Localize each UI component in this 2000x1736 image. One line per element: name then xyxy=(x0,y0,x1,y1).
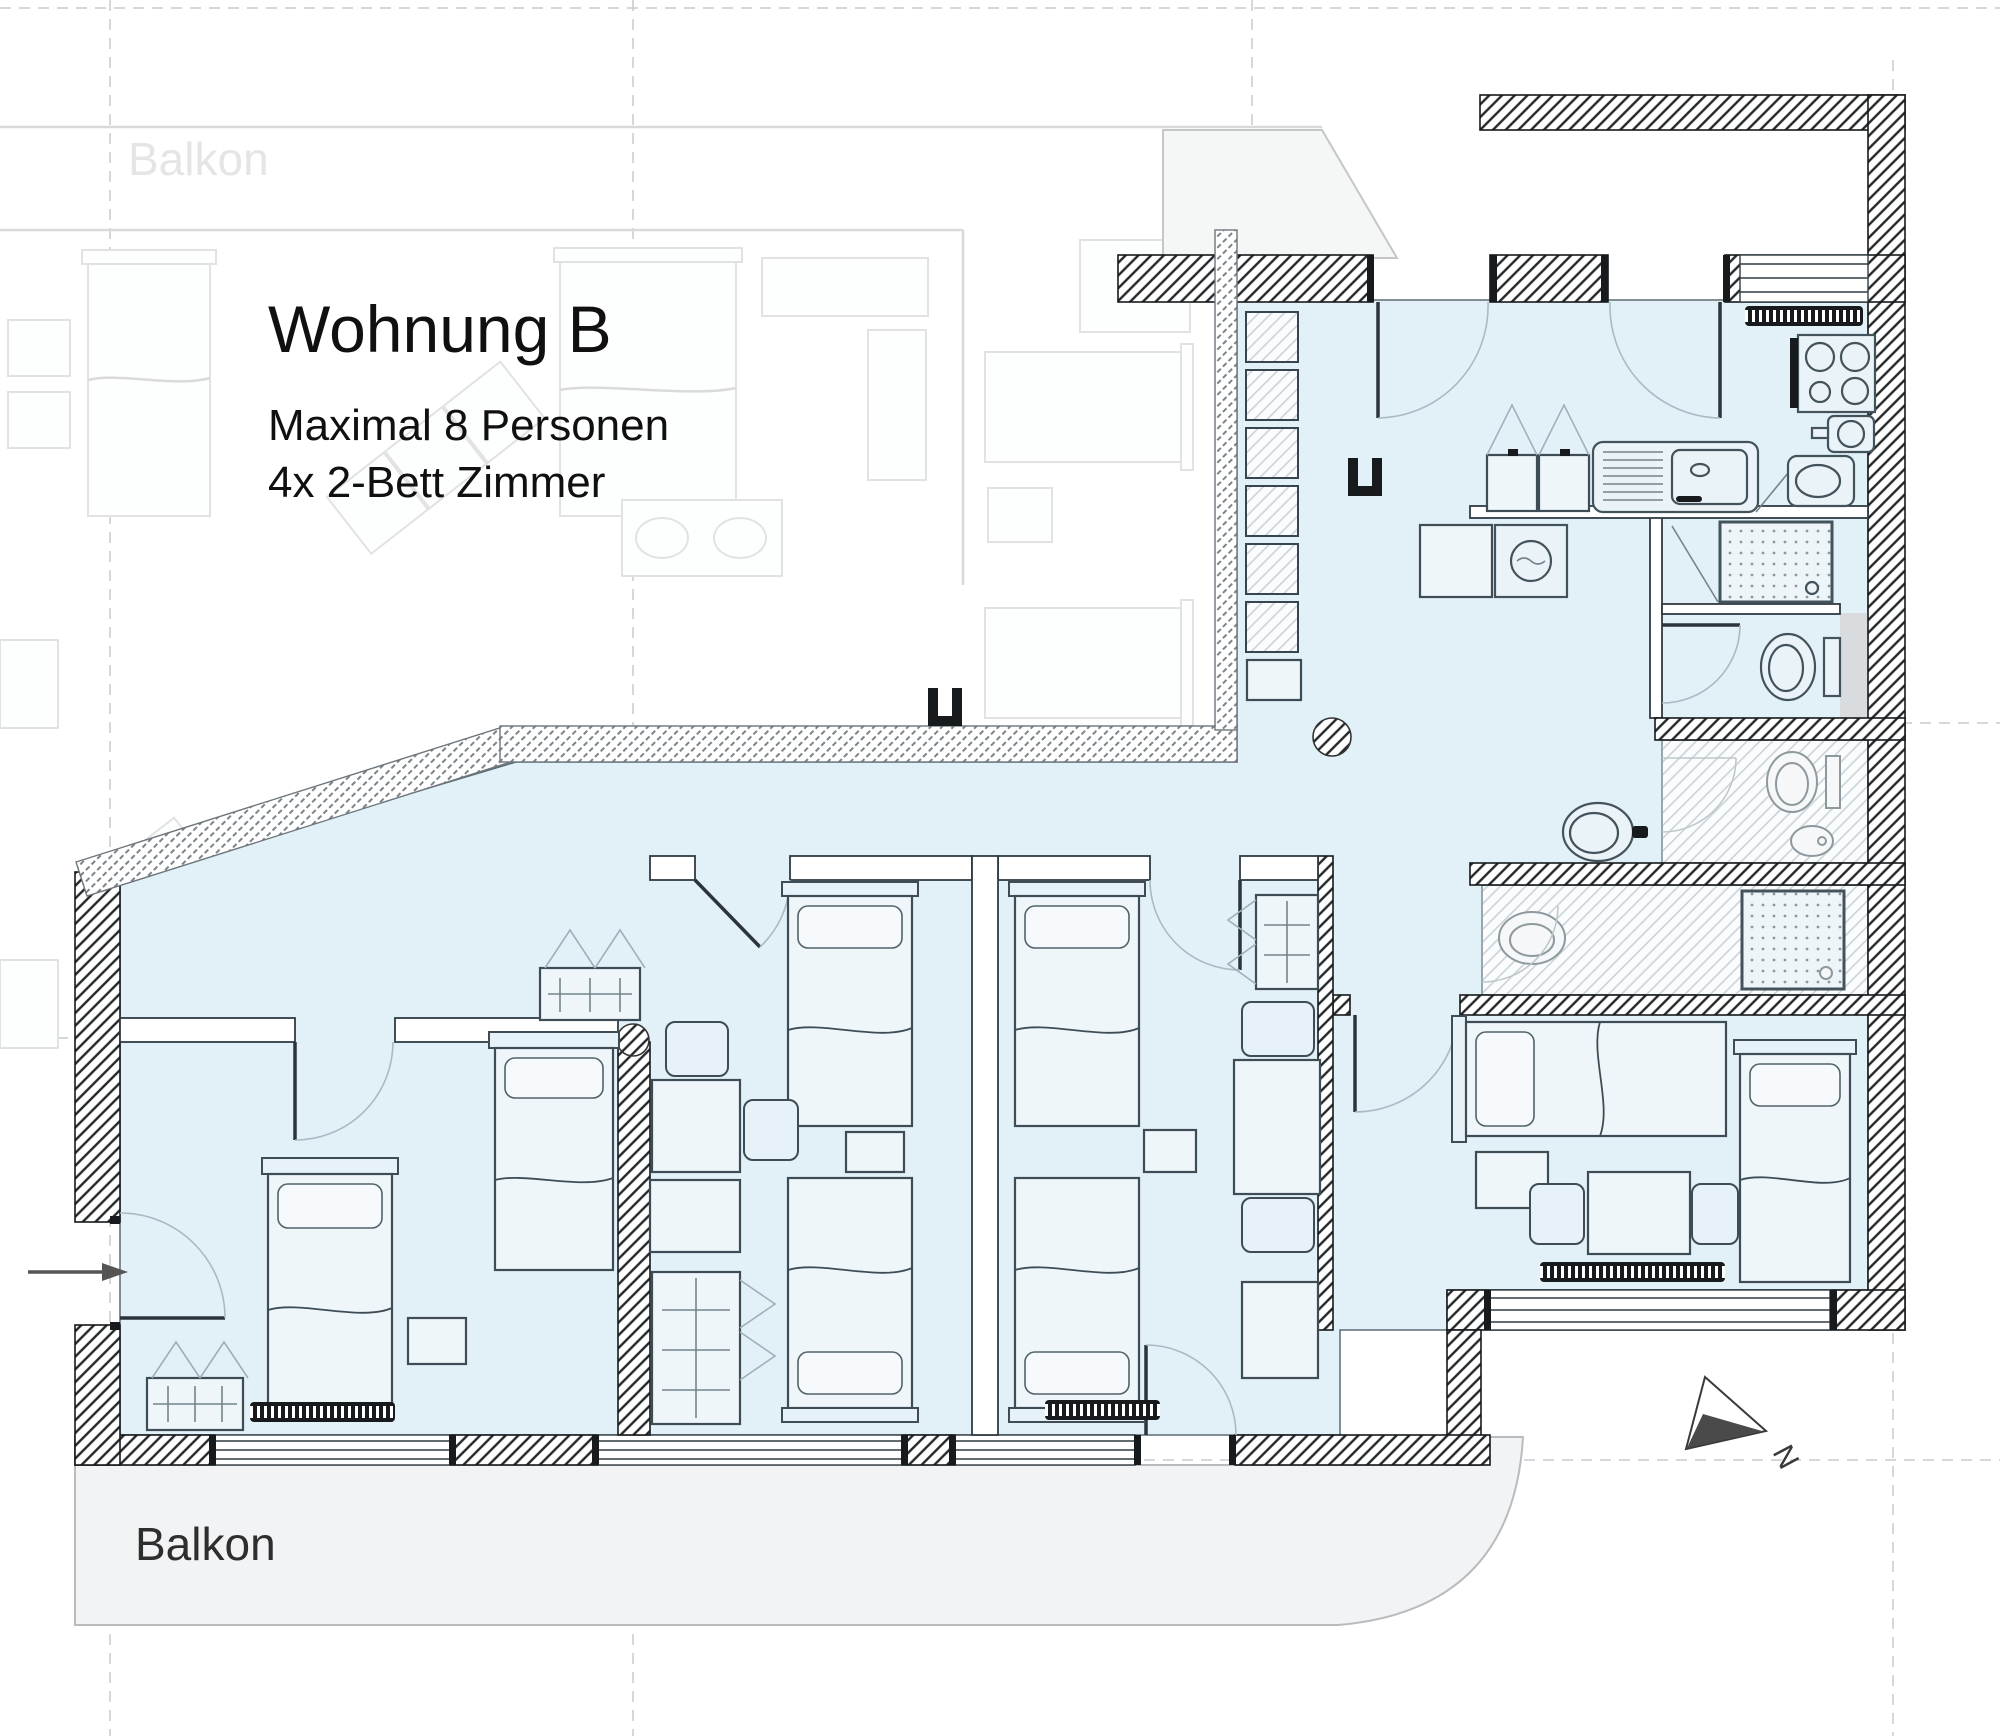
apartment-room-count: 4x 2-Bett Zimmer xyxy=(268,458,605,507)
cabinet xyxy=(650,1180,740,1252)
kitchen-basin xyxy=(1788,456,1854,506)
column xyxy=(617,1024,649,1056)
chair xyxy=(1530,1184,1584,1244)
neighbor-balcony-area xyxy=(1163,130,1397,258)
column xyxy=(1313,718,1351,756)
bed xyxy=(1009,1178,1145,1422)
entry-arrow-icon xyxy=(28,1263,128,1281)
stove xyxy=(1790,335,1875,412)
bed xyxy=(489,1032,619,1270)
bed xyxy=(1452,1016,1726,1142)
window-room1 xyxy=(209,1435,456,1465)
window-room3 xyxy=(949,1435,1141,1465)
kitchen-sink xyxy=(1593,442,1758,512)
apartment-title: Wohnung B xyxy=(268,292,612,366)
bed xyxy=(782,882,918,1126)
nightstand xyxy=(408,1318,466,1364)
bed xyxy=(782,1178,918,1422)
cabinet xyxy=(1242,1282,1318,1378)
neighbor-wc-room xyxy=(1662,740,1868,863)
window-room2 xyxy=(592,1435,908,1465)
balcony-top-label: Balkon xyxy=(128,133,269,185)
toilet-b xyxy=(1761,634,1840,700)
kitchen-cabinet2 xyxy=(1420,525,1492,597)
nightstand xyxy=(846,1132,904,1172)
balcony-bottom-label: Balkon xyxy=(135,1518,276,1570)
chair xyxy=(744,1100,798,1160)
bed xyxy=(1009,882,1145,1126)
faded-neighbor-bedroom xyxy=(985,240,1193,726)
table xyxy=(1234,1060,1320,1194)
bed xyxy=(262,1158,398,1414)
door-stop-icon xyxy=(928,688,962,726)
apartment-capacity: Maximal 8 Personen xyxy=(268,401,669,450)
hall-cabinet xyxy=(1247,660,1301,700)
north-label: N xyxy=(1766,1440,1805,1475)
chair xyxy=(1692,1184,1738,1244)
nightstand xyxy=(1144,1130,1196,1172)
bed xyxy=(1734,1040,1856,1282)
chair xyxy=(666,1022,728,1076)
neighbor-shower-room xyxy=(1482,885,1868,995)
chair xyxy=(1242,1002,1314,1056)
washing-machine xyxy=(1495,525,1567,597)
table xyxy=(652,1080,740,1172)
chair xyxy=(1242,1198,1314,1252)
floorplan-canvas: N Balkon Balkon Wohnung B Maximal 8 Pers… xyxy=(0,0,2000,1736)
floorplan-page: N Balkon Balkon Wohnung B Maximal 8 Pers… xyxy=(0,0,2000,1736)
faded-bed xyxy=(82,250,216,516)
table xyxy=(1588,1172,1690,1254)
